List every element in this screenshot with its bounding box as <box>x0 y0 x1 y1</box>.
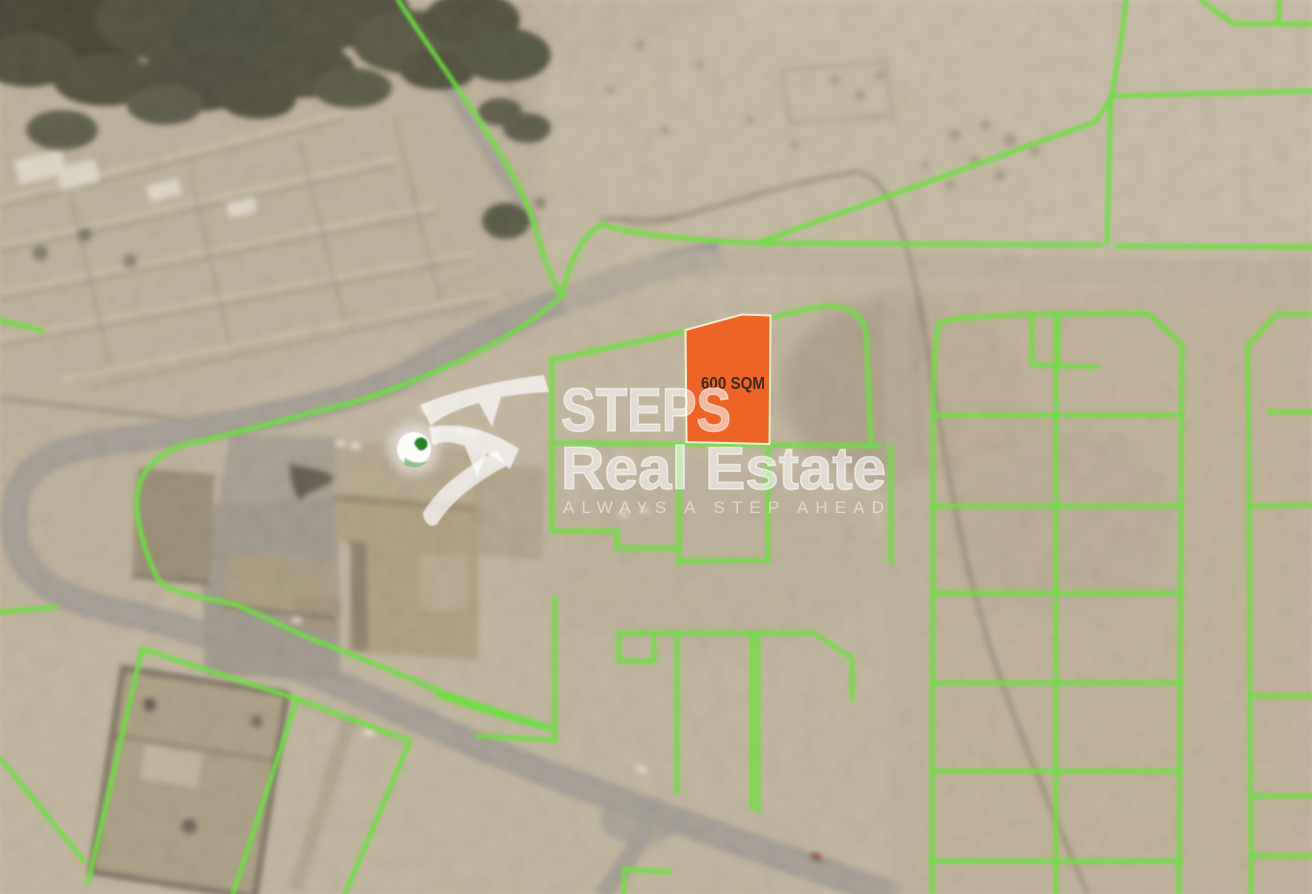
svg-text:ALWAYS A STEP AHEAD: ALWAYS A STEP AHEAD <box>563 498 891 517</box>
svg-text:STEPS: STEPS <box>561 376 731 444</box>
svg-text:Real Estate: Real Estate <box>561 435 886 502</box>
